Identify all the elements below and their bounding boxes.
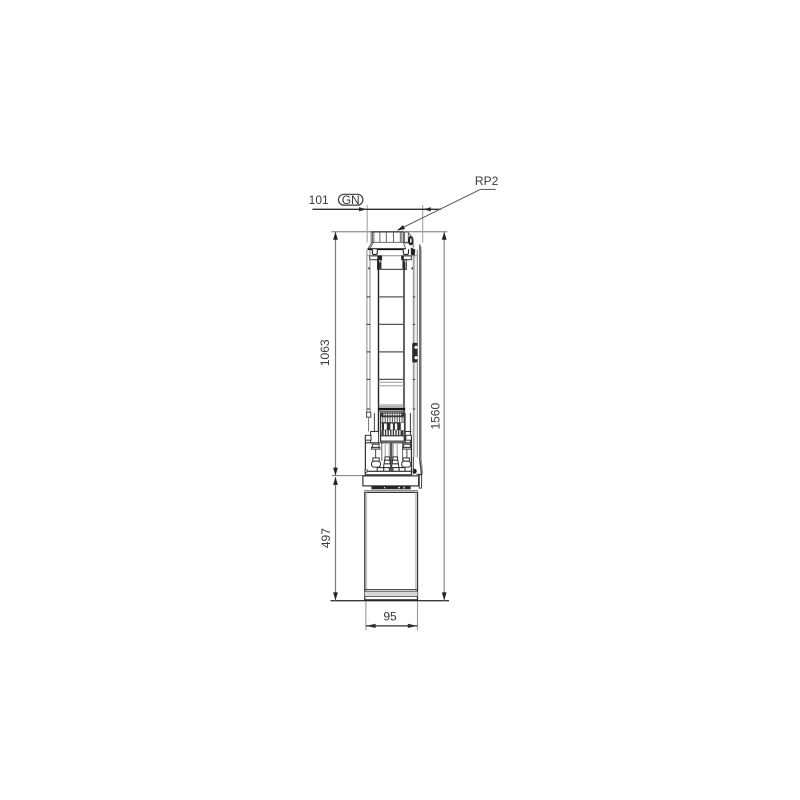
svg-text:1063: 1063 bbox=[318, 339, 332, 366]
svg-text:497: 497 bbox=[319, 528, 333, 548]
svg-text:1560: 1560 bbox=[428, 403, 442, 430]
svg-text:101: 101 bbox=[309, 193, 329, 207]
svg-text:RP2: RP2 bbox=[475, 174, 499, 188]
svg-text:95: 95 bbox=[383, 609, 397, 623]
svg-text:GN: GN bbox=[342, 193, 360, 207]
